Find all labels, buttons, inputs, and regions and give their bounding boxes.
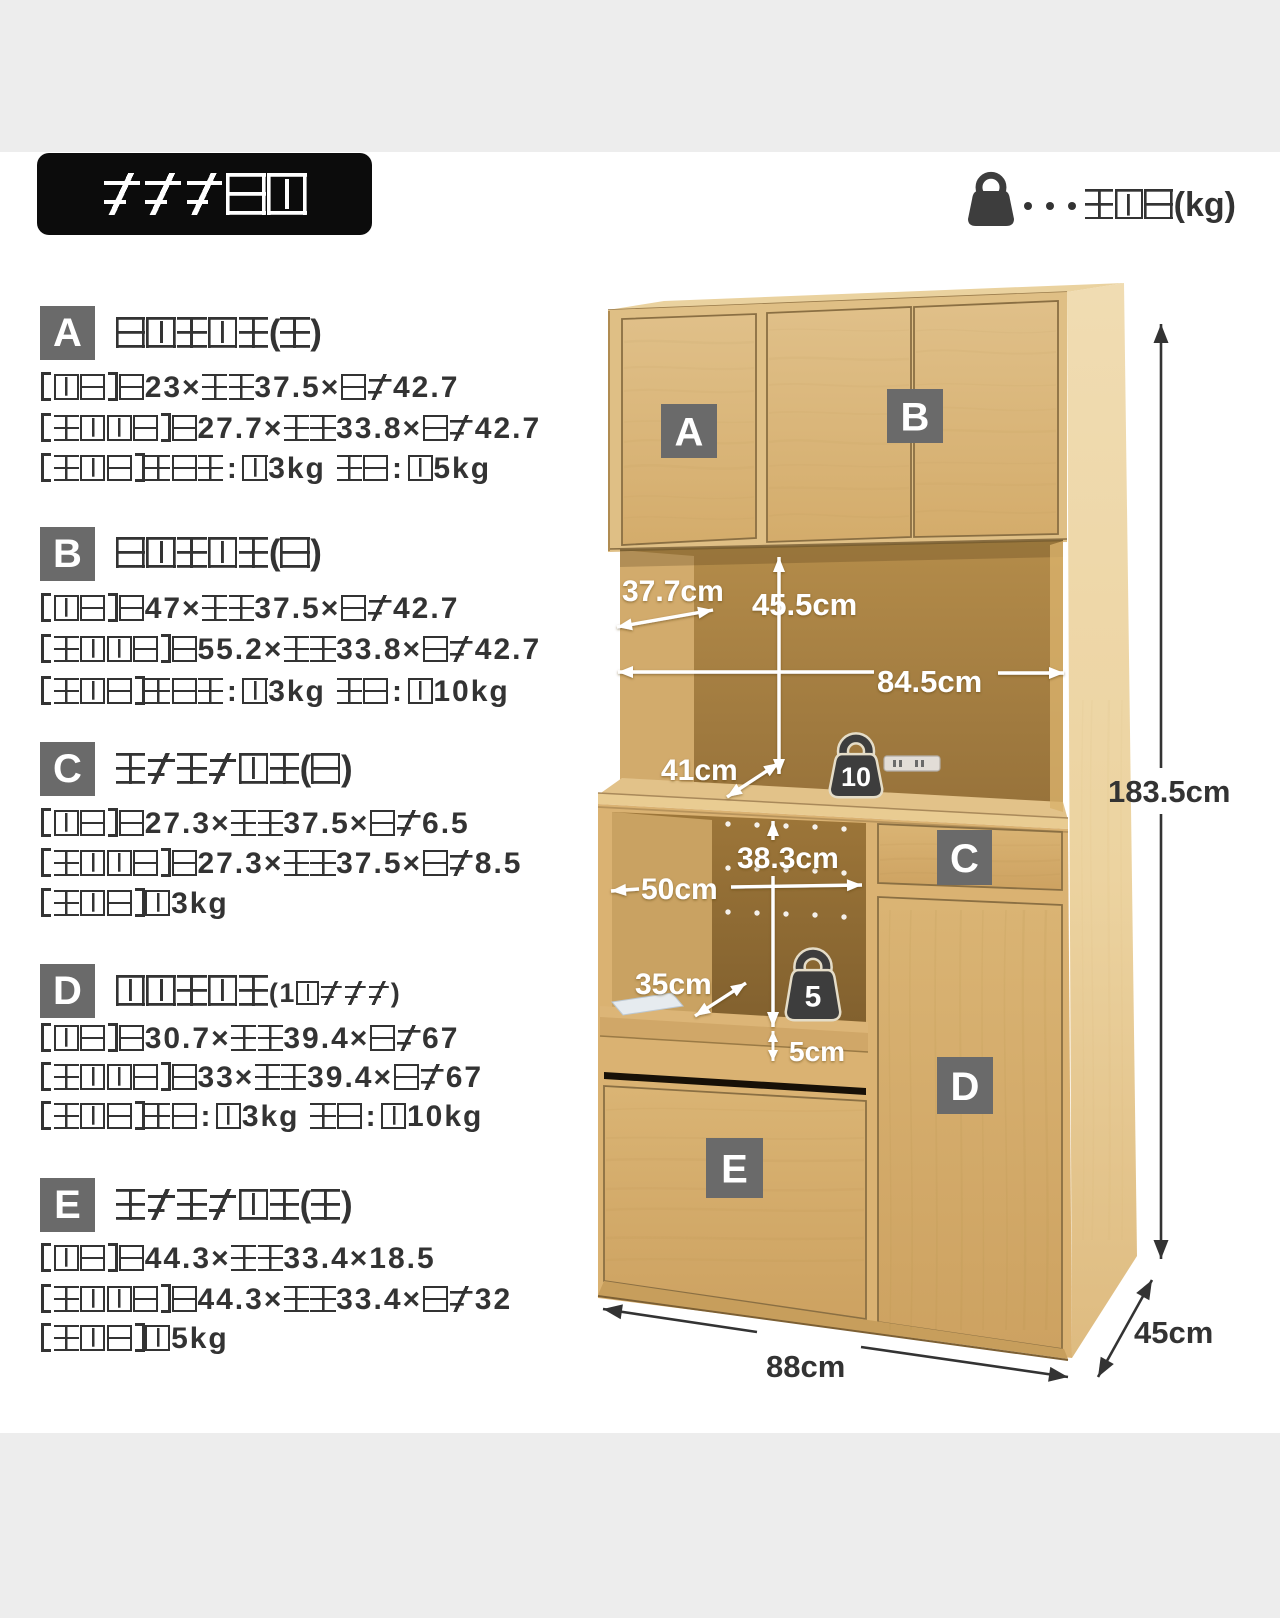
svg-text:B: B [901, 395, 930, 439]
svg-text:35cm: 35cm [635, 968, 712, 1001]
svg-text:45.5cm: 45.5cm [752, 587, 857, 622]
svg-text:183.5cm: 183.5cm [1108, 774, 1230, 809]
svg-text:D: D [951, 1065, 980, 1109]
svg-text:41cm: 41cm [661, 754, 738, 787]
svg-text:45cm: 45cm [1134, 1315, 1213, 1350]
svg-text:50cm: 50cm [641, 873, 718, 906]
svg-text:5: 5 [805, 981, 822, 1014]
svg-text:88cm: 88cm [766, 1349, 845, 1384]
svg-text:E: E [721, 1147, 748, 1191]
svg-text:A: A [675, 410, 704, 454]
svg-text:5cm: 5cm [789, 1036, 845, 1067]
svg-text:37.7cm: 37.7cm [622, 575, 724, 608]
svg-text:10: 10 [841, 762, 871, 792]
svg-text:38.3cm: 38.3cm [737, 842, 839, 875]
svg-text:84.5cm: 84.5cm [877, 664, 982, 699]
svg-text:C: C [950, 837, 979, 881]
